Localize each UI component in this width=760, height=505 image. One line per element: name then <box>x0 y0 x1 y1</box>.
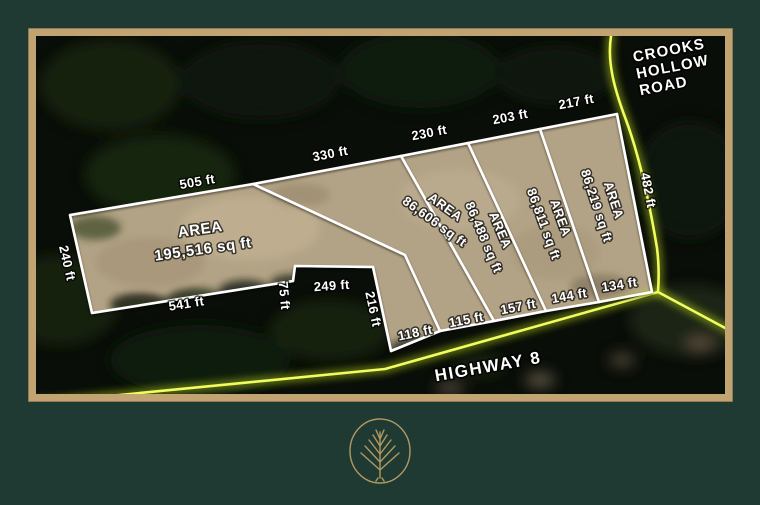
dimension-label-249ft: 249 ft <box>313 277 350 294</box>
logo-tree <box>361 430 399 481</box>
map-frame: 505 ft 330 ft 230 ft 203 ft 217 ft 482 f… <box>28 28 733 402</box>
land-survey-graphic: 505 ft 330 ft 230 ft 203 ft 217 ft 482 f… <box>0 0 760 505</box>
tree-logo <box>342 414 418 490</box>
dimension-label-75ft: 75 ft <box>276 281 293 311</box>
satellite-map: 505 ft 330 ft 230 ft 203 ft 217 ft 482 f… <box>36 36 725 394</box>
survey-plot-svg: 505 ft 330 ft 230 ft 203 ft 217 ft 482 f… <box>36 36 725 394</box>
